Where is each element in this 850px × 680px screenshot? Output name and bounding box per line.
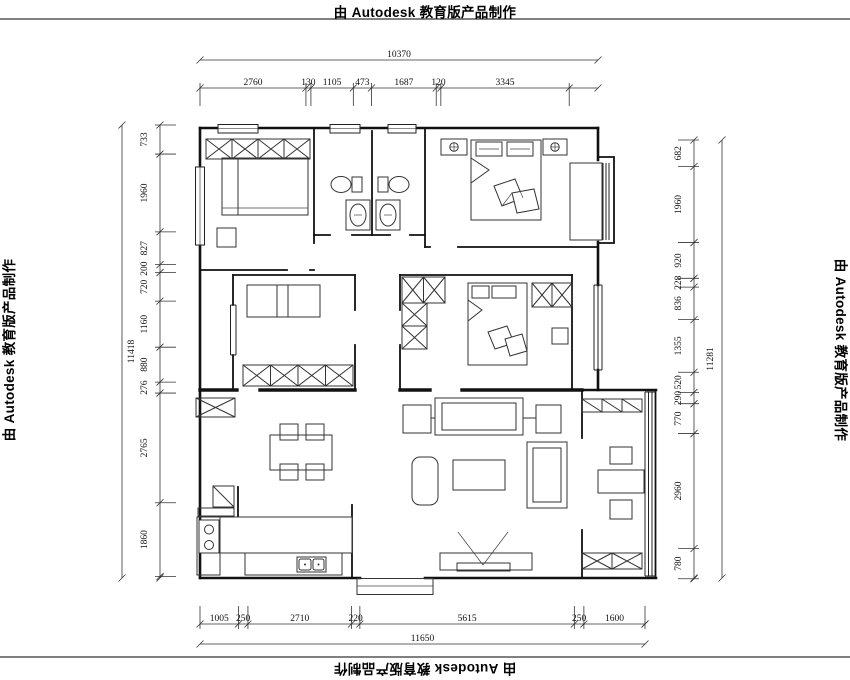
svg-text:1860: 1860 xyxy=(140,530,150,549)
island-counter-icon xyxy=(220,517,352,553)
nightstand-icon xyxy=(441,139,467,155)
svg-text:1355: 1355 xyxy=(674,336,684,355)
svg-text:1005: 1005 xyxy=(210,614,229,624)
floor-plan-canvas: 103702760130110547316871203345 116501005… xyxy=(0,0,850,680)
svg-text:827: 827 xyxy=(140,241,150,256)
svg-text:200: 200 xyxy=(140,261,150,276)
quilt-icon xyxy=(512,189,539,213)
svg-text:780: 780 xyxy=(674,556,684,571)
svg-text:130: 130 xyxy=(301,78,316,88)
svg-text:720: 720 xyxy=(140,279,150,294)
bedroom-top-left xyxy=(206,139,310,247)
window-icon xyxy=(218,125,258,134)
nightstand-icon xyxy=(217,228,236,247)
svg-text:2765: 2765 xyxy=(140,438,150,457)
dimension-chain-right: 1128168219609202288361355520290770296078… xyxy=(674,137,726,583)
svg-text:1960: 1960 xyxy=(140,183,150,202)
outer-walls xyxy=(200,128,656,578)
window-icon xyxy=(388,125,416,134)
balcony xyxy=(582,399,644,569)
sofa-icon xyxy=(527,442,567,508)
svg-text:228: 228 xyxy=(674,275,684,290)
cabinet-icon xyxy=(213,486,234,507)
svg-text:880: 880 xyxy=(140,357,150,372)
bay-window-icon xyxy=(570,163,609,240)
svg-text:290: 290 xyxy=(674,391,684,406)
svg-text:473: 473 xyxy=(355,78,370,88)
svg-text:2760: 2760 xyxy=(243,78,262,88)
svg-text:1105: 1105 xyxy=(323,78,342,88)
kitchen xyxy=(197,486,352,575)
svg-text:11281: 11281 xyxy=(706,347,716,371)
nightstand-icon xyxy=(552,328,568,344)
counter-icon xyxy=(245,553,342,575)
window-icon xyxy=(196,167,205,245)
sink-icon xyxy=(346,200,370,230)
bathroom-1 xyxy=(331,177,370,231)
svg-text:3345: 3345 xyxy=(496,78,515,88)
bed-icon xyxy=(222,158,308,215)
bed-icon xyxy=(468,283,527,365)
svg-text:11650: 11650 xyxy=(411,634,435,644)
sofa-icon xyxy=(435,398,523,435)
side-table-icon xyxy=(536,405,561,433)
chair-icon xyxy=(610,500,632,519)
living-room xyxy=(403,398,567,571)
svg-text:250: 250 xyxy=(236,614,251,624)
bedroom-master xyxy=(441,139,567,220)
desk-icon xyxy=(598,470,644,493)
svg-text:5615: 5615 xyxy=(458,614,477,624)
svg-text:1687: 1687 xyxy=(394,78,413,88)
window-icon xyxy=(594,285,602,370)
bedroom-middle xyxy=(402,277,572,365)
coffee-table-icon xyxy=(453,460,505,490)
study xyxy=(243,285,353,386)
dining-room xyxy=(196,398,332,480)
inner-walls xyxy=(200,128,598,578)
tv-icon xyxy=(440,532,532,571)
svg-text:920: 920 xyxy=(674,253,684,268)
bathroom-2 xyxy=(376,177,409,231)
svg-text:250: 250 xyxy=(572,614,587,624)
desk-icon xyxy=(247,285,320,317)
chair-icon xyxy=(610,447,632,464)
threshold-hatch xyxy=(198,508,234,516)
svg-text:733: 733 xyxy=(140,132,150,147)
window-icon xyxy=(330,125,360,134)
svg-text:11418: 11418 xyxy=(127,340,137,364)
dimension-chain-top: 103702760130110547316871203345 xyxy=(197,50,602,106)
dimension-chain-bottom: 116501005250271022056152501600 xyxy=(197,606,649,648)
dimension-chain-left: 114187331960827200720116088027627651860 xyxy=(119,122,177,582)
toilet-icon xyxy=(331,177,362,193)
nightstand-icon xyxy=(543,139,567,155)
sink-icon xyxy=(297,557,326,572)
sink-icon xyxy=(376,200,400,230)
armchair-icon xyxy=(412,457,438,505)
svg-text:770: 770 xyxy=(674,411,684,426)
bed-icon xyxy=(471,140,541,220)
svg-text:1160: 1160 xyxy=(140,315,150,334)
svg-text:682: 682 xyxy=(674,146,684,161)
svg-text:2710: 2710 xyxy=(290,614,309,624)
svg-text:220: 220 xyxy=(349,614,364,624)
side-table-icon xyxy=(403,405,431,433)
window-icon xyxy=(645,392,656,576)
svg-text:10370: 10370 xyxy=(387,50,411,60)
svg-text:1960: 1960 xyxy=(674,195,684,214)
stove-icon xyxy=(199,520,219,553)
svg-text:120: 120 xyxy=(431,78,446,88)
svg-text:520: 520 xyxy=(674,375,684,390)
svg-text:836: 836 xyxy=(674,296,684,311)
toilet-icon xyxy=(378,177,409,193)
entrance-porch xyxy=(357,579,433,595)
svg-text:1600: 1600 xyxy=(605,614,624,624)
svg-text:2960: 2960 xyxy=(674,481,684,500)
window-icon xyxy=(231,305,237,355)
svg-text:276: 276 xyxy=(140,380,150,395)
